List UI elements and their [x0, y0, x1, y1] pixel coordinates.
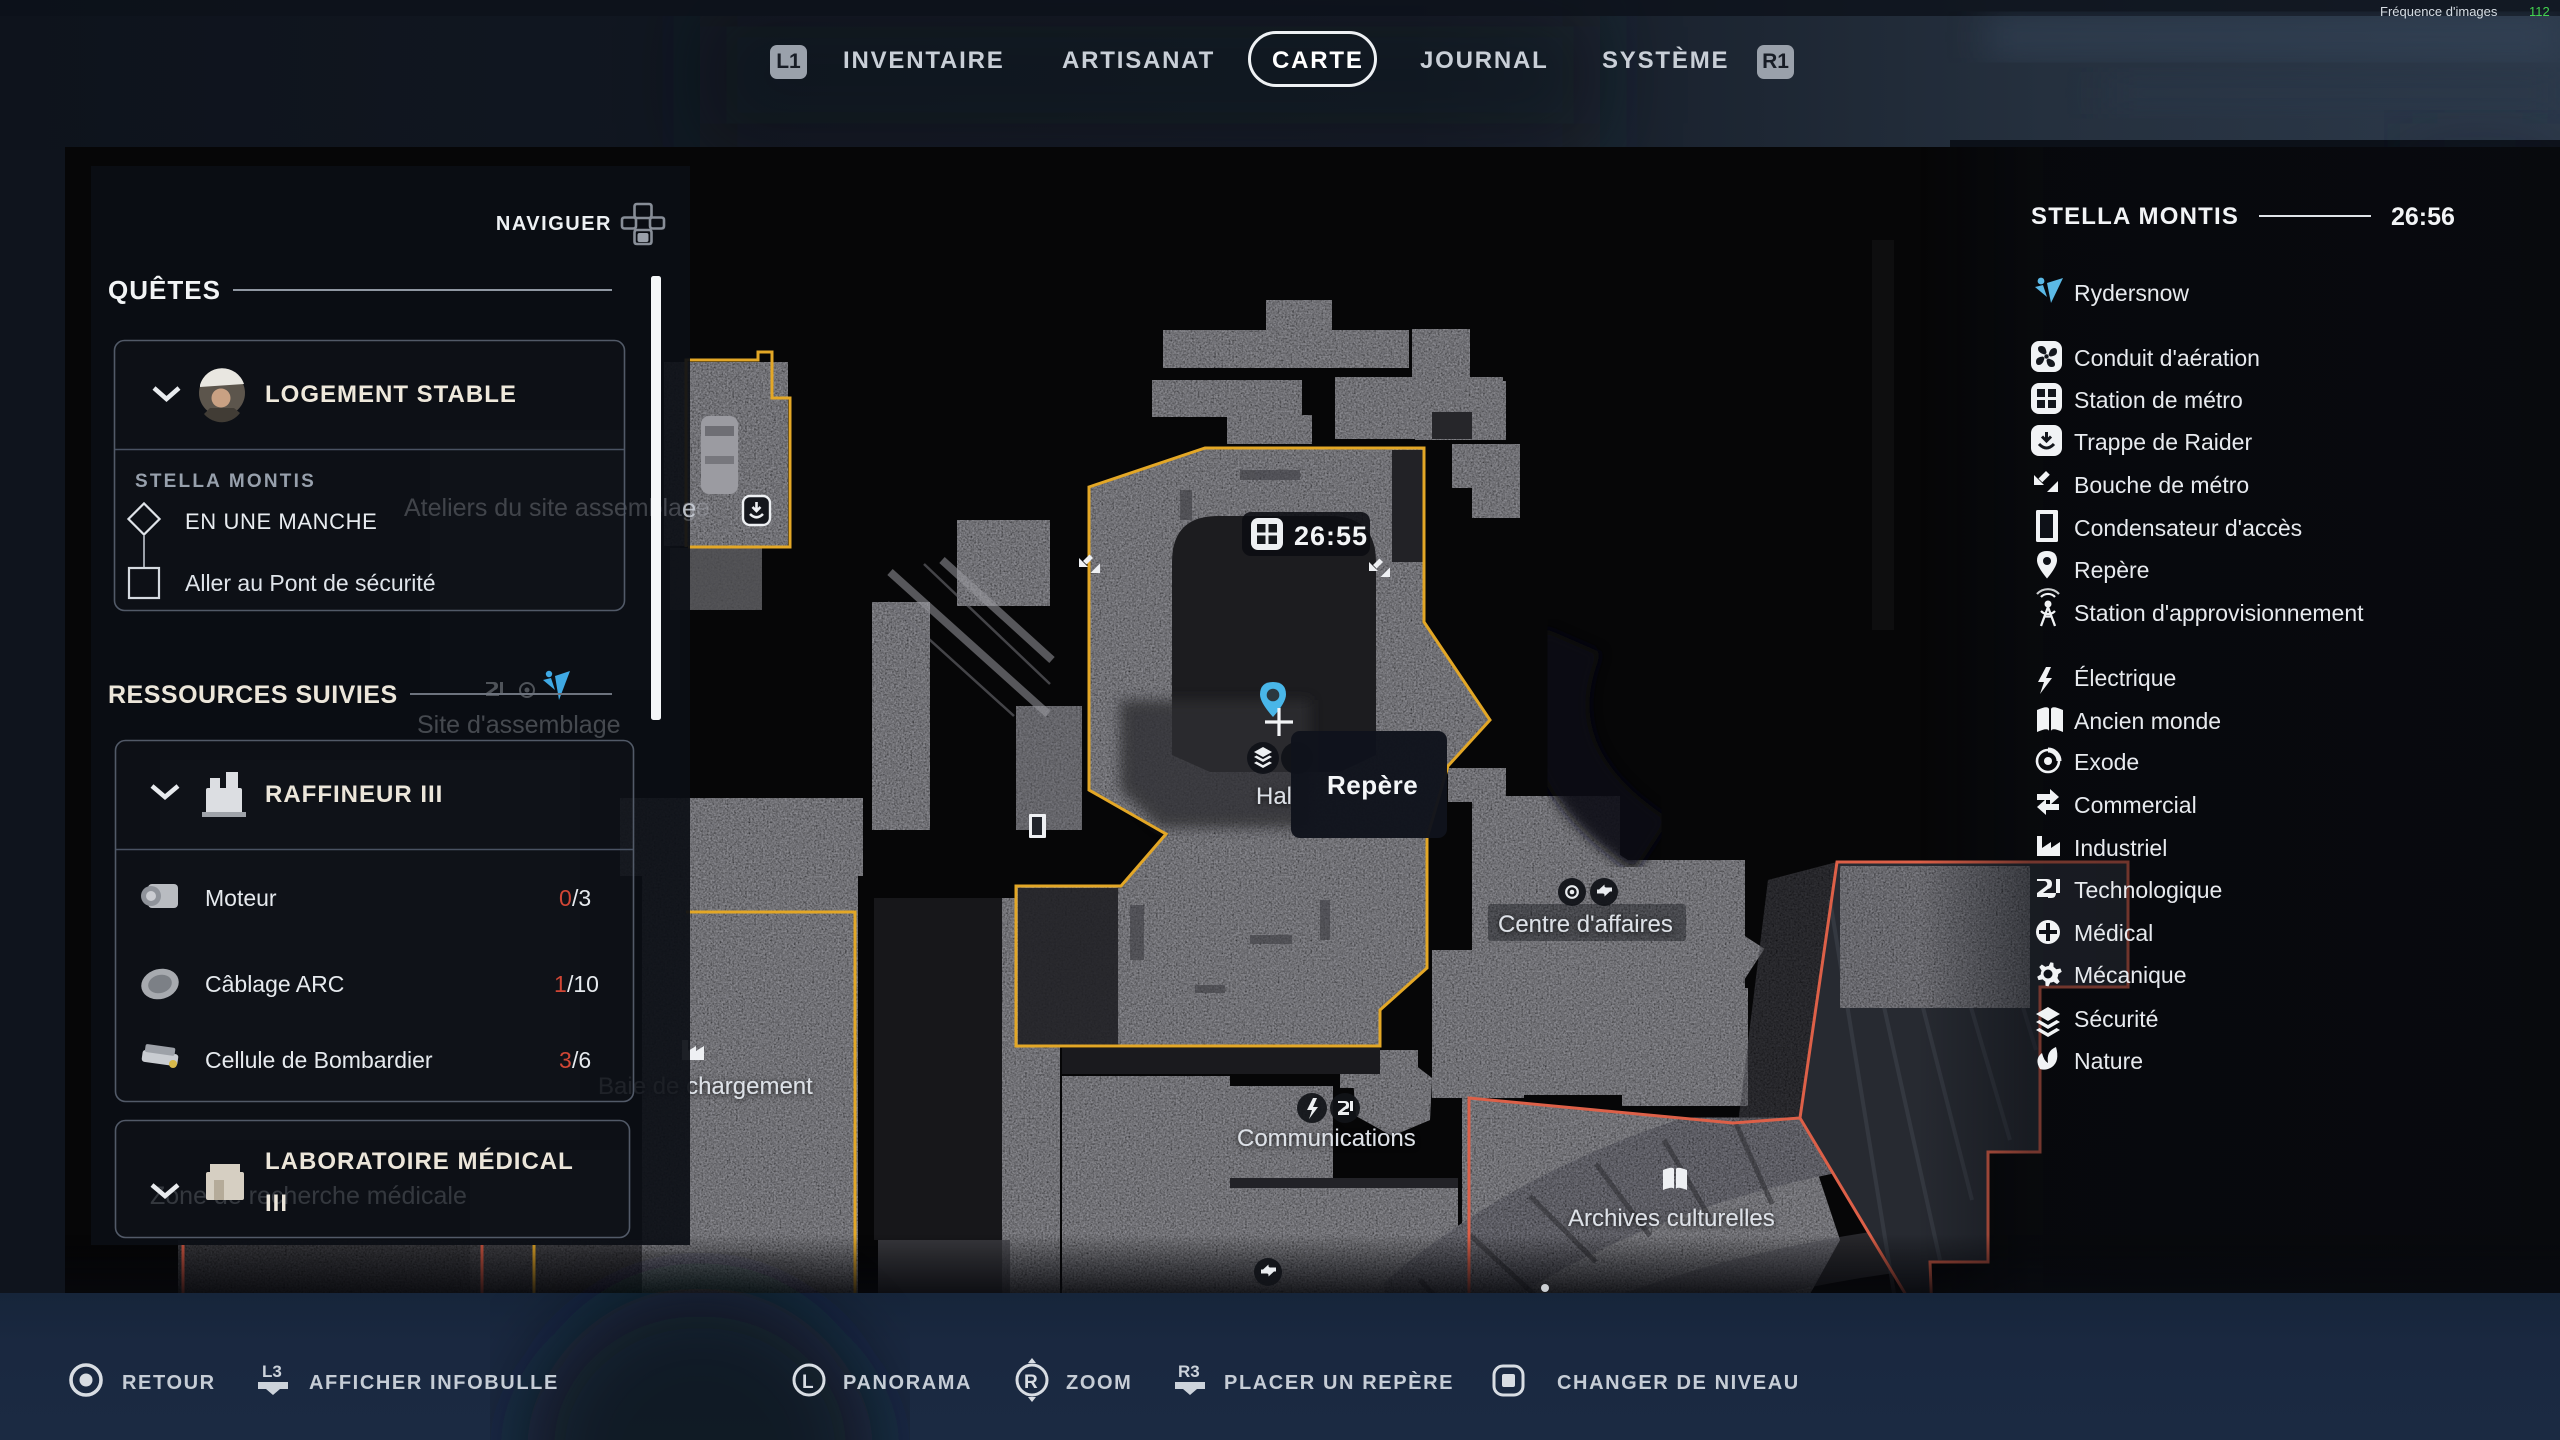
svg-text:PANORAMA: PANORAMA — [843, 1372, 972, 1394]
svg-text:AFFICHER INFOBULLE: AFFICHER INFOBULLE — [309, 1372, 559, 1394]
svg-text:R3: R3 — [1178, 1362, 1200, 1381]
svg-text:CHANGER DE NIVEAU: CHANGER DE NIVEAU — [1557, 1372, 1800, 1394]
svg-text:RETOUR: RETOUR — [122, 1372, 216, 1394]
svg-text:L: L — [802, 1372, 814, 1393]
svg-text:R: R — [1024, 1372, 1038, 1393]
svg-text:PLACER UN REPÈRE: PLACER UN REPÈRE — [1224, 1371, 1454, 1394]
svg-text:L3: L3 — [262, 1362, 282, 1381]
svg-text:ZOOM: ZOOM — [1066, 1372, 1132, 1394]
